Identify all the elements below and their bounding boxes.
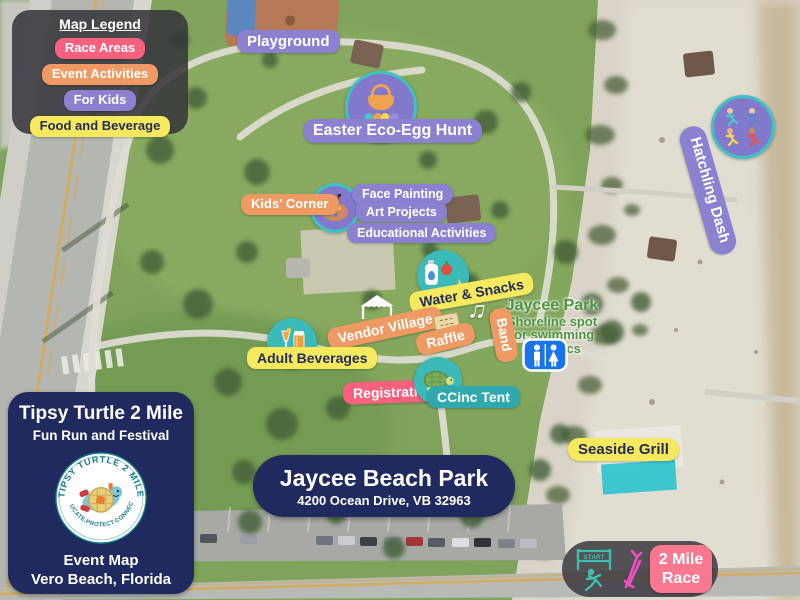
running-kids-icon xyxy=(721,105,765,149)
legend-item-race-areas: Race Areas xyxy=(55,38,145,59)
event-location-label: Vero Beach, Florida xyxy=(31,571,171,588)
playground-label: Playground xyxy=(237,30,340,53)
event-subtitle: Fun Run and Festival xyxy=(33,428,170,443)
easter-basket-icon xyxy=(368,95,394,110)
event-map-poster: Jaycee Park Shoreline spot for swimming … xyxy=(0,0,800,600)
start-text: START xyxy=(583,554,604,561)
kids-corner-label: Kids' Corner xyxy=(241,194,339,215)
art-projects-label: Art Projects xyxy=(356,202,447,222)
start-line-icon: START xyxy=(574,546,616,592)
event-info-card: Tipsy Turtle 2 Mile Fun Run and Festival… xyxy=(8,392,194,594)
venue-name: Jaycee Beach Park xyxy=(280,465,488,492)
basemap-park-name: Jaycee Park xyxy=(494,298,610,315)
adult-beverages-label: Adult Beverages xyxy=(247,347,377,369)
venue-address: 4200 Ocean Drive, VB 32963 xyxy=(297,493,470,508)
venue-card: Jaycee Beach Park 4200 Ocean Drive, VB 3… xyxy=(253,455,515,517)
seaside-grill-label: Seaside Grill xyxy=(568,438,679,461)
educational-activities-label: Educational Activities xyxy=(347,223,496,243)
water-bottle-icon xyxy=(425,264,438,285)
legend-item-for-kids: For Kids xyxy=(64,90,137,111)
race-direction-arrows-icon xyxy=(620,547,646,591)
event-title: Tipsy Turtle 2 Mile xyxy=(19,403,183,425)
race-info-box: START 2 Mile Race xyxy=(562,541,718,597)
map-legend: Map Legend Race Areas Event Activities F… xyxy=(12,10,188,134)
ccinc-tent-label: CCinc Tent xyxy=(427,386,520,408)
easter-egg-hunt-label: Easter Eco-Egg Hunt xyxy=(303,119,482,143)
event-map-label: Event Map xyxy=(63,552,138,569)
legend-item-food-beverage: Food and Beverage xyxy=(30,116,171,137)
legend-item-event-activities: Event Activities xyxy=(42,64,158,85)
restroom-icon xyxy=(522,338,568,372)
apple-icon xyxy=(441,264,452,275)
race-label: 2 Mile Race xyxy=(650,545,712,593)
legend-title: Map Legend xyxy=(59,16,141,32)
tipsy-turtle-logo: TIPSY TURTLE 2 MILE EDUCATE.PROTECT.CONN… xyxy=(54,451,148,545)
hatchling-dash-icon xyxy=(711,95,775,159)
